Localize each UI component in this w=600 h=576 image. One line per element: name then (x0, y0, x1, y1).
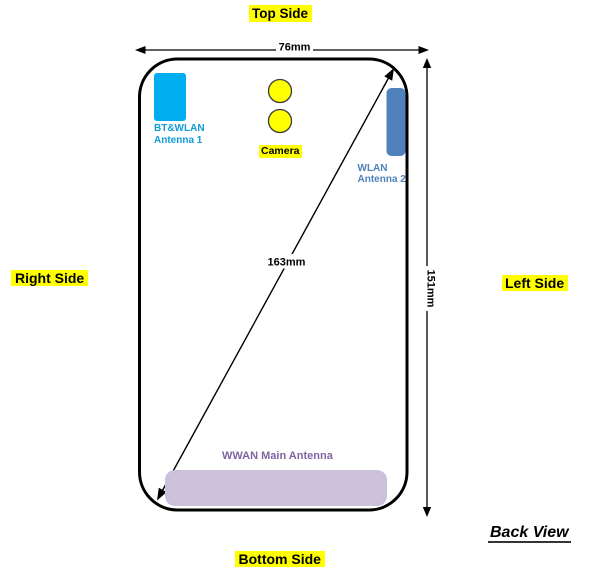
svg-text:163mm: 163mm (268, 257, 306, 269)
svg-text:76mm: 76mm (279, 42, 311, 54)
svg-text:151mm: 151mm (425, 270, 437, 308)
